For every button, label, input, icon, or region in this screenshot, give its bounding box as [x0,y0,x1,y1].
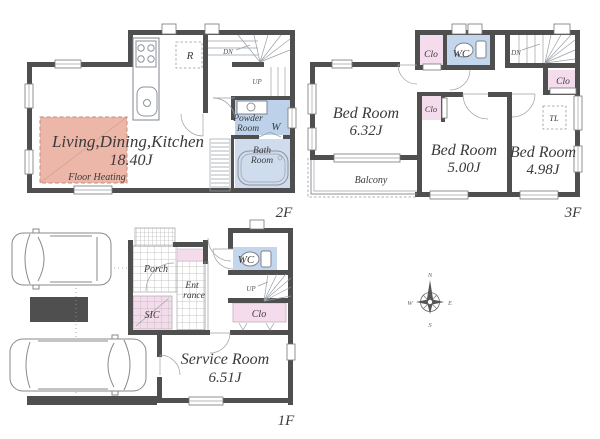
sic-label: SIC [145,310,160,321]
closet-right-label: Clo [556,77,570,87]
floor-heating-label: Floor Heating [67,172,126,183]
bedroom1-label: Bed Room [333,105,399,122]
closet-label-1f: Clo [252,309,266,320]
compass-n-label: N [427,272,433,279]
entry-step [135,228,175,246]
stairs-dn-label-2f: DN [222,48,233,56]
car-icon-bottom [10,335,146,395]
entrance-label: Ent [184,281,199,291]
compass-s-label: S [428,322,432,329]
bedroom1-area: 6.32J [350,123,384,139]
compass-icon: N E S W [407,272,452,329]
ldk-label: Living,Dining,Kitchen [51,132,204,151]
svg-text:Room: Room [236,124,259,134]
svg-text:rance: rance [183,291,205,301]
floor-2f-plan: Living,Dining,Kitchen 18.40J Floor Heati… [25,24,296,221]
service-room-label: Service Room [181,351,269,368]
floorplan-page: Living,Dining,Kitchen 18.40J Floor Heati… [0,0,600,439]
floor-label-3f: 3F [564,205,583,221]
svg-text:Room: Room [250,156,273,166]
compass-w-label: W [407,300,413,307]
bath-room-label: Bath [253,146,271,156]
ldk-area: 18.40J [109,152,153,169]
bedroom2-label: Bed Room [431,142,497,159]
kitchen-counter [133,38,159,120]
shoe-closet-area [177,249,204,261]
powder-vanity [237,101,267,114]
compass-e-label: E [447,300,452,307]
wc-label-1f: WC [238,254,255,266]
closet-hanger-marks [239,323,274,330]
powder-room-label: Powder [232,114,263,124]
stairs-up-label-1f: UP [246,285,256,293]
closet-mid-door [442,98,447,118]
porch-label: Porch [143,264,168,275]
closet-mid-label: Clo [425,104,437,114]
stairs-1f [258,274,291,301]
stairs-3f [519,35,575,63]
floor-label-1f: 1F [278,413,296,429]
balcony-label: Balcony [355,175,388,186]
bedroom3-label: Bed Room [510,144,576,161]
closet-right-door [550,88,576,94]
slatted-strip [210,139,230,191]
bedroom2-area: 5.00J [448,160,482,176]
floor-3f-plan: Clo WC DN Clo TL Clo Bed Room 6.32J Bed … [308,24,582,221]
floorplan-drawing: Living,Dining,Kitchen 18.40J Floor Heati… [0,0,600,439]
stairs-dn-label-3f: DN [510,49,521,57]
fridge-label: R [186,50,194,62]
tl-label: TL [549,113,559,123]
service-room-area: 6.51J [209,370,243,386]
floor-1f-plan: Porch Ent rance SIC WC UP Clo Service Ro… [10,220,295,429]
washer-label: W [271,121,281,133]
bedroom3-area: 4.98J [527,162,561,178]
closet-top-label: Clo [424,50,438,60]
car-icon-top [12,229,111,289]
closet-top-door [423,64,441,70]
wc-label-3f: WC [453,48,470,60]
stairs-up-label-2f: UP [252,78,262,86]
floor-label-2f: 2F [276,205,294,221]
